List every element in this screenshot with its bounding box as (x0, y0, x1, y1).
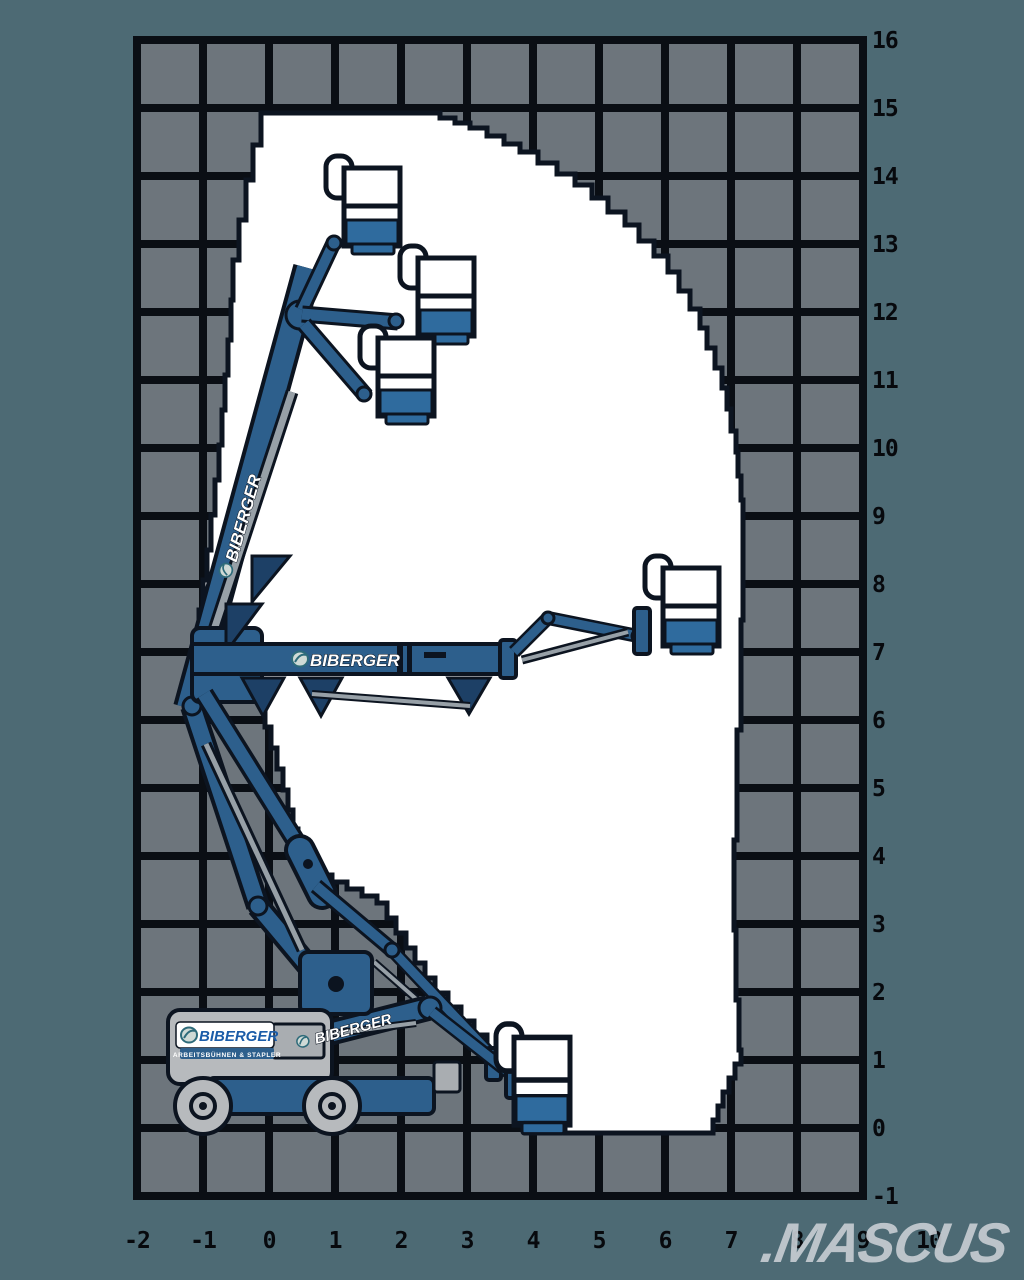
bottom-axis-label: 3 (461, 1228, 474, 1254)
bottom-axis-label: 0 (263, 1228, 276, 1254)
wheel (175, 1078, 231, 1134)
right-axis-label: 3 (872, 912, 885, 938)
working-range-diagram: BIBERGER BIBERGER BIBERGER BIBERGER ARBE… (0, 0, 1024, 1280)
bottom-axis-label: 4 (527, 1228, 540, 1254)
biberger-body-sublabel: ARBEITSBÜHNEN & STAPLER (173, 1050, 281, 1059)
bottom-axis-label: -1 (190, 1228, 216, 1254)
right-axis-label: 8 (872, 572, 885, 598)
biberger-logo-body: BIBERGER ARBEITSBÜHNEN & STAPLER (173, 1022, 281, 1059)
bottom-axis-label: 5 (593, 1228, 606, 1254)
bottom-axis-label: -2 (124, 1228, 150, 1254)
biberger-leaf-icon (181, 1028, 197, 1043)
right-axis-label: -1 (872, 1184, 898, 1210)
right-axis-label: 11 (872, 368, 898, 394)
right-axis-label: 14 (872, 164, 898, 190)
right-axis-label: 13 (872, 232, 898, 258)
right-axis-label: 5 (872, 776, 885, 802)
right-axis-label: 2 (872, 980, 885, 1006)
right-axis-label: 12 (872, 300, 898, 326)
wheel (304, 1078, 360, 1134)
right-axis-label: 9 (872, 504, 885, 530)
reach-diagram-page: BIBERGER BIBERGER BIBERGER BIBERGER ARBE… (0, 0, 1024, 1280)
bottom-axis-label: 7 (725, 1228, 738, 1254)
right-axis-label: 10 (872, 436, 898, 462)
biberger-label: BIBERGER (310, 651, 400, 670)
mascus-watermark: .MASCUS (757, 1211, 1015, 1274)
right-axis-label: 7 (872, 640, 885, 666)
right-axis-label: 4 (872, 844, 885, 870)
bottom-axis-label: 1 (329, 1228, 342, 1254)
right-axis-label: 1 (872, 1048, 885, 1074)
biberger-leaf-icon (292, 652, 308, 667)
right-axis-labels: 161514131211109876543210-1 (872, 28, 898, 1210)
right-axis-label: 15 (872, 96, 898, 122)
bottom-axis-label: 6 (659, 1228, 672, 1254)
biberger-body-label: BIBERGER (199, 1028, 278, 1045)
access-step (434, 1062, 460, 1092)
bottom-axis-label: 2 (395, 1228, 408, 1254)
right-axis-label: 0 (872, 1116, 885, 1142)
right-axis-label: 6 (872, 708, 885, 734)
right-axis-label: 16 (872, 28, 898, 54)
